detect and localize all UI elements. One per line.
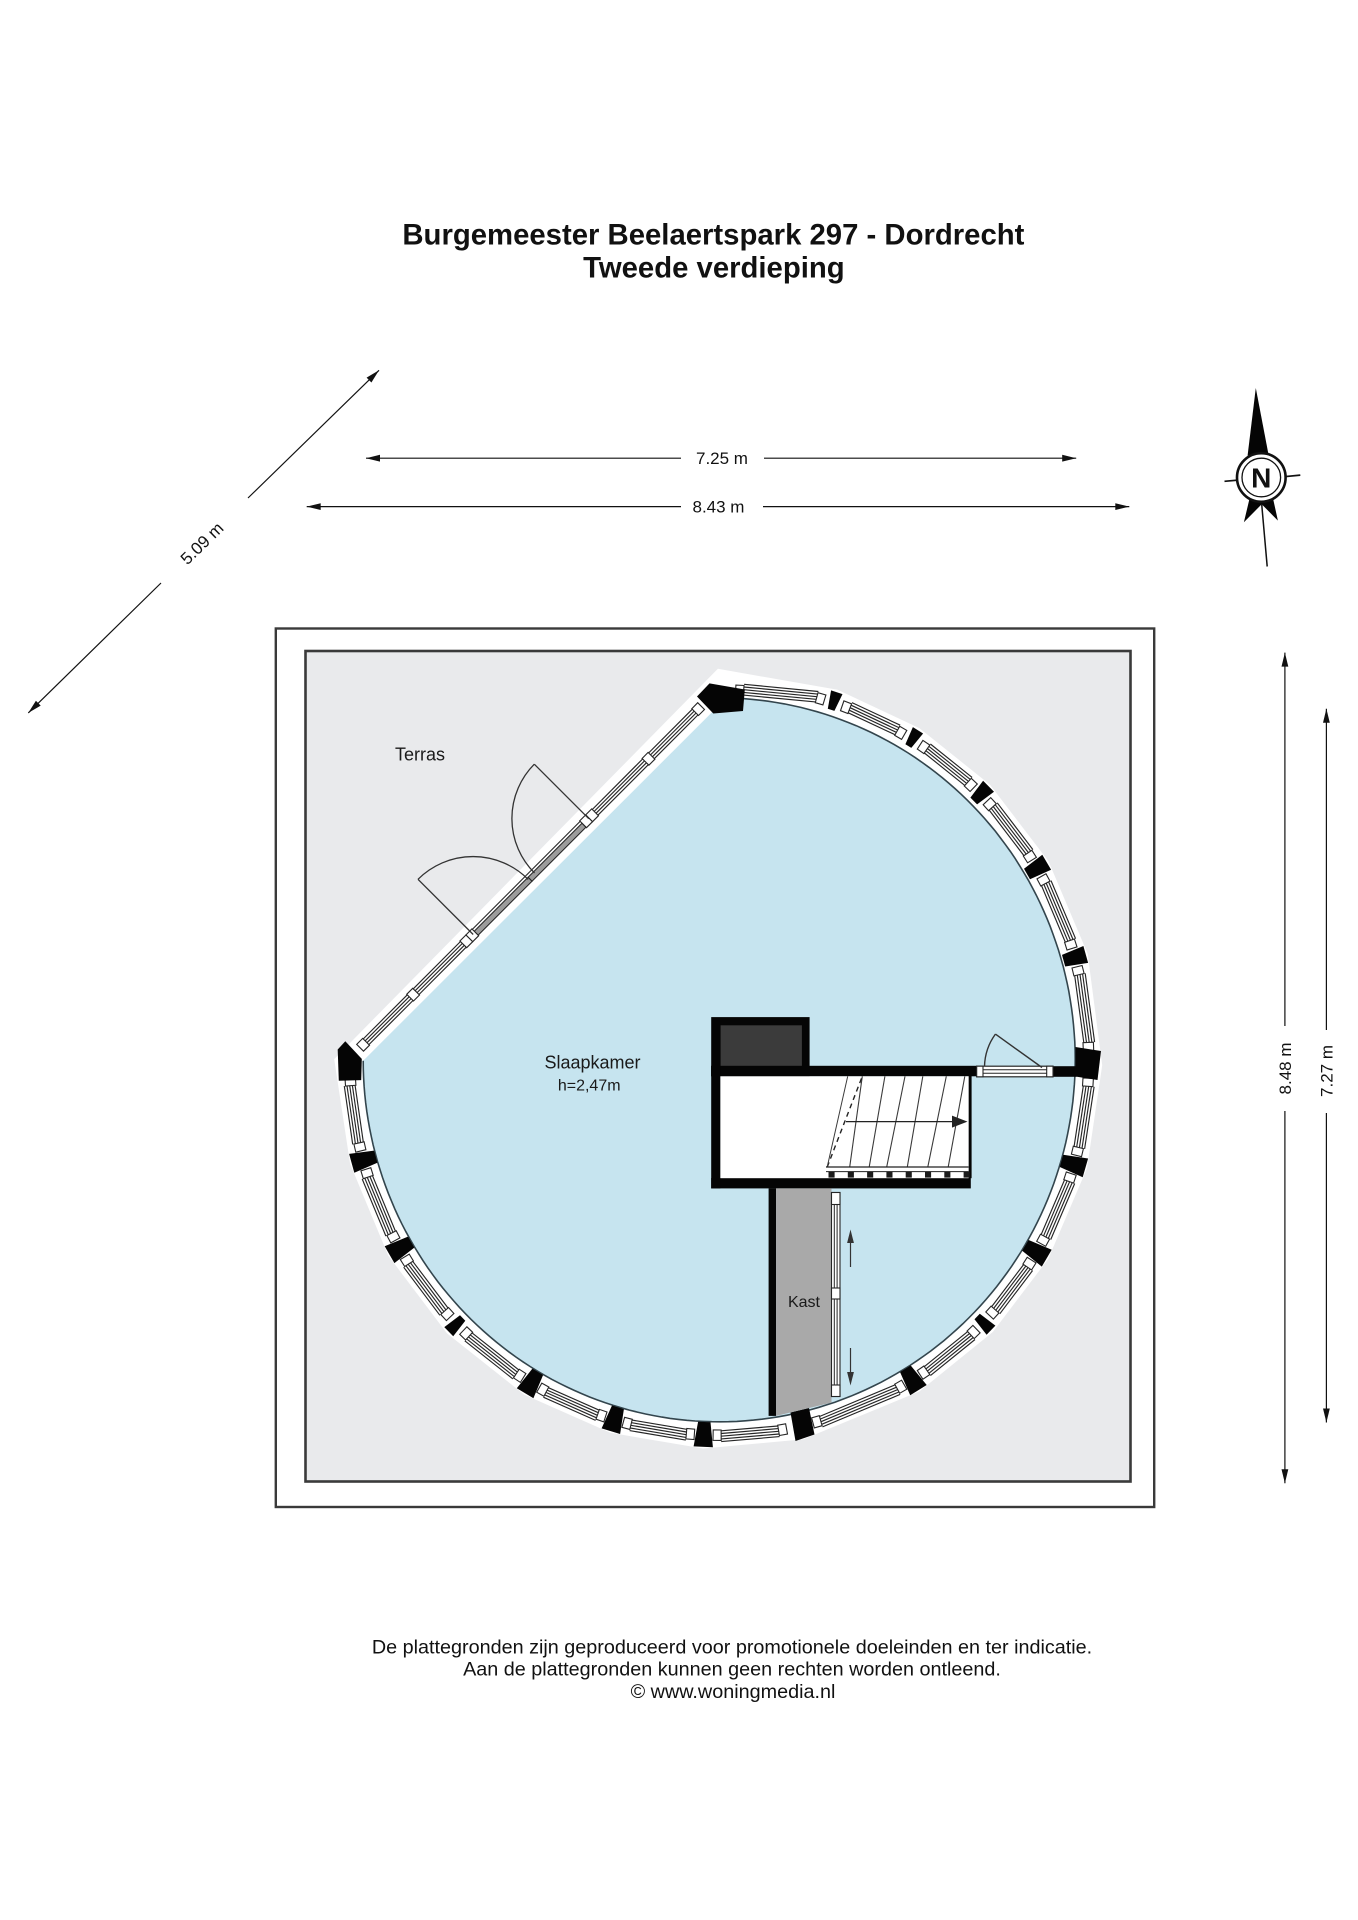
svg-text:De plattegronden zijn geproduc: De plattegronden zijn geproduceerd voor … — [372, 1636, 1092, 1658]
svg-text:7.27 m: 7.27 m — [1317, 1045, 1336, 1097]
svg-text:8.43 m: 8.43 m — [693, 498, 745, 517]
svg-text:© www.woningmedia.nl: © www.woningmedia.nl — [631, 1681, 836, 1703]
svg-text:Burgemeester Beelaertspark 297: Burgemeester Beelaertspark 297 - Dordrec… — [402, 218, 1024, 251]
svg-text:h=2,47m: h=2,47m — [558, 1078, 621, 1095]
svg-text:Aan de plattegronden kunnen ge: Aan de plattegronden kunnen geen rechten… — [463, 1659, 1001, 1681]
svg-text:Terras: Terras — [395, 745, 445, 765]
svg-text:5.09 m: 5.09 m — [177, 519, 227, 569]
svg-text:7.25 m: 7.25 m — [696, 449, 748, 468]
svg-text:8.48 m: 8.48 m — [1276, 1043, 1295, 1095]
svg-text:Tweede verdieping: Tweede verdieping — [583, 252, 845, 285]
svg-text:N: N — [1251, 463, 1271, 494]
svg-text:Slaapkamer: Slaapkamer — [544, 1053, 640, 1073]
svg-text:Kast: Kast — [788, 1294, 821, 1311]
